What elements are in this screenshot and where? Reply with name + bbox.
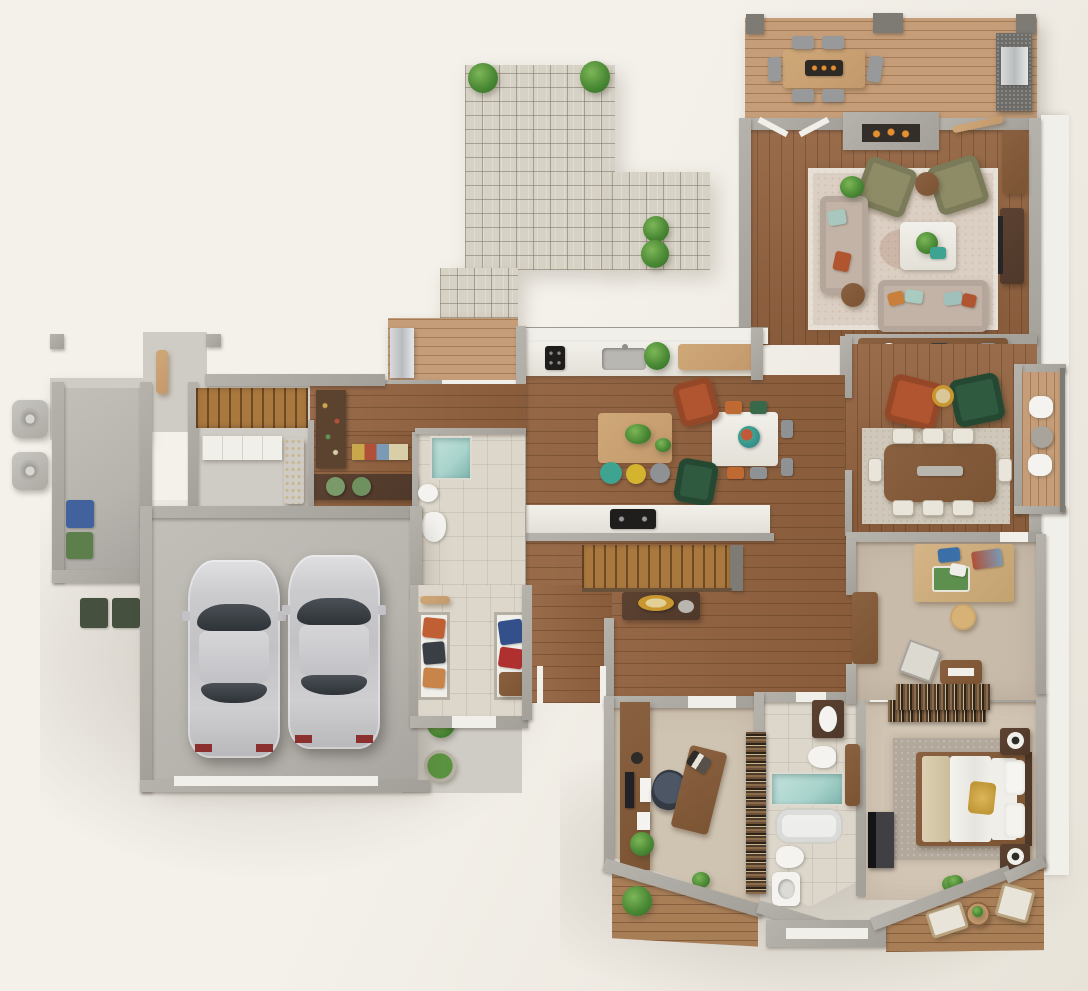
porch-post-2	[206, 334, 221, 347]
pantry-boxes	[352, 444, 408, 460]
craft-wardrobe	[852, 592, 878, 664]
deck-chair-3	[792, 89, 814, 102]
sofa-end-table	[841, 283, 865, 307]
dining-chair-8	[998, 458, 1012, 482]
car-right-rear-window	[301, 675, 367, 694]
nightstand-lamp-bottom	[1007, 848, 1024, 865]
vanity-sink	[819, 706, 837, 732]
fire-tray	[805, 60, 843, 76]
console-plate	[678, 600, 694, 613]
grill	[1001, 47, 1028, 85]
deck-chair-2	[822, 36, 844, 49]
porch-post-3	[537, 666, 543, 704]
craft-door-threshold	[1000, 532, 1028, 542]
balcony-frame-bottom	[1014, 506, 1066, 514]
living-console-ne	[1002, 130, 1026, 194]
car-left-windshield	[197, 604, 271, 632]
car-left-roof	[199, 631, 269, 682]
balcony-frame-left	[1014, 364, 1022, 514]
main-staircase	[196, 388, 308, 428]
bath-hall-bookshelf	[746, 732, 766, 894]
patio-plant-2	[580, 61, 610, 93]
porch-post-1	[50, 334, 64, 349]
stair-hall-cabinet	[202, 436, 282, 460]
hvac-unit-2	[12, 452, 48, 490]
bathtub	[775, 808, 843, 844]
patio-plant-3	[643, 216, 669, 242]
dining-chair-1	[892, 428, 914, 444]
coffee-table-book	[930, 247, 946, 259]
car-right	[288, 555, 380, 749]
craft-east-wall	[1036, 534, 1046, 694]
office-keyboard	[640, 778, 651, 802]
powder-toilet	[422, 512, 446, 542]
floor-plan-render	[0, 0, 1088, 991]
office-monitor	[625, 772, 634, 808]
balcony-stool-1	[1029, 396, 1053, 418]
coat-red	[498, 646, 525, 669]
stool-yellow	[626, 464, 646, 484]
dining-chair-6	[952, 500, 974, 516]
deck-post-mid	[873, 13, 903, 33]
casual-chair-gray-3	[781, 458, 793, 476]
kitchen-armchair-green	[672, 457, 719, 507]
center-staircase	[582, 545, 732, 591]
patio-main	[465, 65, 615, 270]
bed-pillow-2	[1004, 803, 1025, 839]
bed-throw-beige	[922, 756, 950, 842]
casual-chair-orange-1	[725, 401, 742, 414]
patio-plant-1	[468, 63, 498, 93]
patio-ext-bottom	[440, 268, 518, 318]
living-plant-stand	[840, 176, 864, 198]
car-right-roof	[299, 625, 369, 675]
bed-pillow-gold	[968, 781, 997, 815]
dining-chair-3	[952, 428, 974, 444]
dining-table-runner	[917, 466, 963, 476]
office-papers	[637, 812, 650, 830]
stool-gray	[650, 463, 670, 483]
balcony-rail	[1060, 368, 1065, 512]
casual-chair-gray-1	[750, 467, 767, 479]
pouf-green-2	[352, 477, 371, 496]
mudroom-east-wall	[522, 585, 532, 720]
bed-frame	[916, 752, 1032, 846]
bedroom-east-wall	[1036, 692, 1046, 870]
coat-dark	[422, 641, 446, 665]
dining-chair-5	[922, 500, 944, 516]
powder-sink	[418, 484, 438, 502]
pantry-shelf	[316, 390, 346, 468]
craft-low-bookshelf	[896, 684, 990, 710]
console-gold-bowl	[638, 595, 674, 611]
kitchen-ne-corner-wall	[751, 328, 763, 380]
casual-chair-gray-2	[781, 420, 793, 438]
dining-armchair-green	[948, 371, 1007, 428]
powder-north-wall	[415, 428, 526, 434]
bed-pillow-1	[1004, 760, 1025, 796]
car-right-taillights	[295, 735, 372, 743]
bin-alcove-wall-bottom	[52, 570, 152, 583]
casual-table-bowl	[738, 426, 760, 448]
tv-console	[1000, 208, 1024, 284]
mudroom-hook-rail	[420, 596, 450, 604]
office-plant	[630, 832, 654, 856]
bath-wall-cabinet	[845, 744, 860, 806]
dining-chair-2	[922, 428, 944, 444]
bed-headboard	[1025, 752, 1032, 846]
pedestal-sink-basin	[778, 879, 795, 899]
garage-west-wall	[140, 506, 152, 792]
car-left-rear-window	[201, 683, 267, 703]
coat-orange-1	[422, 617, 446, 639]
car-left-mirror-l	[182, 611, 189, 621]
deck-left-shrub	[622, 886, 652, 916]
deck-table-plant	[972, 906, 983, 917]
pantry-divider-wall	[308, 420, 314, 508]
kitchen-counter-cabinet	[678, 344, 754, 370]
left-wing-north-wall	[205, 374, 385, 386]
bath-shower	[770, 772, 844, 806]
craft-cloth-blue	[937, 547, 960, 563]
trash-bin-dark-2	[112, 598, 140, 628]
powder-shower	[430, 436, 472, 480]
sofa-pillow-teal-1	[904, 289, 924, 304]
tv-screen	[998, 216, 1003, 274]
wine-rack	[284, 438, 304, 504]
office-door-threshold	[688, 696, 736, 708]
car-right-mirror-r	[378, 605, 385, 615]
peninsula-cooktop	[610, 509, 656, 529]
desk-lamp	[631, 752, 643, 764]
car-right-windshield	[297, 598, 371, 625]
hvac-unit-1	[12, 400, 48, 438]
trash-bin-dark-1	[80, 598, 108, 628]
center-step-tread	[786, 928, 868, 939]
car-left-taillights	[195, 744, 272, 752]
sofa-pillow-teal-2	[943, 291, 963, 306]
casual-chair-green-1	[750, 401, 767, 414]
dining-chair-4	[892, 500, 914, 516]
recycle-bin-blue	[66, 500, 94, 528]
craft-west-wall-lower	[846, 664, 856, 704]
chaise-pillow-teal	[827, 209, 847, 227]
recycle-bin-green	[66, 532, 93, 559]
stair-newel	[730, 545, 743, 591]
living-side-table	[915, 172, 939, 196]
toilet-2	[776, 846, 804, 868]
deck-chair-1	[792, 36, 814, 49]
deck-chair-4	[822, 89, 844, 102]
island-plant-1	[625, 424, 651, 444]
bedroom-tv	[868, 812, 894, 868]
kitchen-counter-plant	[644, 342, 670, 370]
casual-chair-orange-2	[727, 467, 744, 479]
fireplace-hearth	[862, 124, 920, 142]
mudroom-door-threshold	[452, 716, 496, 728]
garage-door-threshold	[174, 776, 378, 786]
bin-alcove-wall-left	[52, 382, 64, 582]
outdoor-fridge	[390, 328, 414, 378]
deck-post-right	[1016, 14, 1036, 34]
coat-orange-2	[422, 667, 445, 688]
balcony-stool-2	[1031, 426, 1053, 448]
island-plant-2	[655, 438, 671, 452]
record-cabinet-label	[948, 668, 974, 676]
deck-post-left	[746, 14, 764, 34]
entry-door-open	[156, 350, 168, 394]
stool-teal	[600, 462, 622, 484]
garage-north-wall	[148, 506, 422, 518]
balcony-stool-3	[1028, 454, 1052, 476]
craft-stool	[950, 604, 976, 630]
living-west-wall	[739, 118, 751, 348]
peninsula-wall-edge	[522, 533, 774, 541]
sofa-pillow-rust	[961, 293, 977, 309]
toilet-1	[808, 746, 836, 768]
kitchen-faucet	[622, 344, 628, 350]
office-west-wall	[604, 696, 614, 868]
dining-side-table-gold	[932, 385, 954, 407]
counter-cooktop-black	[545, 346, 565, 370]
pouf-green-1	[326, 477, 345, 496]
walkway-potted-plant	[424, 750, 456, 782]
craft-paper	[949, 563, 967, 578]
patio-plant-4	[641, 240, 669, 268]
nightstand-lamp-top	[1007, 732, 1024, 749]
car-right-mirror-l	[282, 605, 289, 615]
coat-blue	[497, 618, 524, 645]
dining-chair-7	[868, 458, 882, 482]
craft-west-wall-upper	[846, 540, 856, 595]
kitchen-sink	[602, 348, 646, 370]
car-left	[188, 560, 280, 758]
deck-chair-5	[768, 57, 781, 81]
